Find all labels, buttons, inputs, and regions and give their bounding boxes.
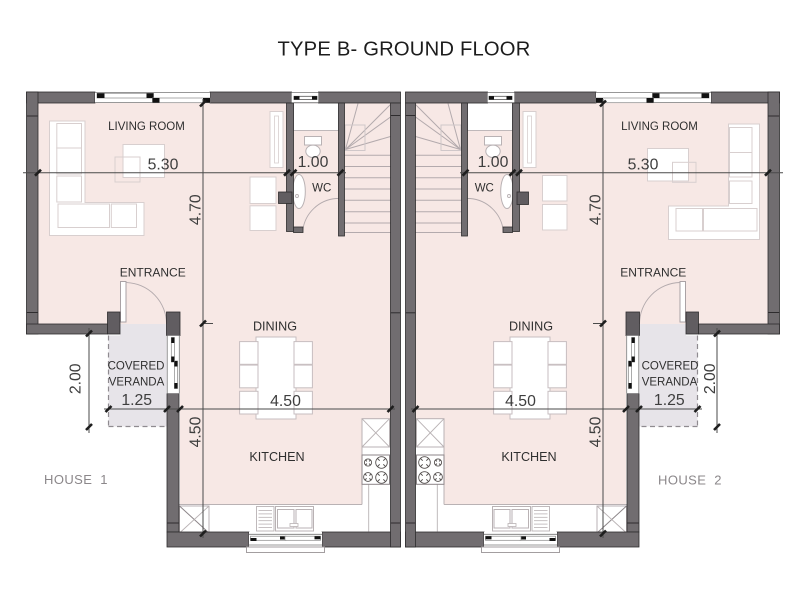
svg-text:2.00: 2.00 [702, 363, 719, 394]
svg-text:KITCHEN: KITCHEN [249, 450, 304, 464]
svg-text:5.30: 5.30 [628, 156, 659, 173]
svg-text:KITCHEN: KITCHEN [501, 450, 556, 464]
svg-text:1.00: 1.00 [478, 154, 509, 171]
svg-text:4.50: 4.50 [588, 416, 605, 447]
svg-text:HOUSE 1: HOUSE 1 [44, 472, 108, 487]
svg-text:DINING: DINING [253, 320, 297, 334]
svg-text:5.30: 5.30 [148, 156, 179, 173]
svg-text:LIVING ROOM: LIVING ROOM [108, 121, 185, 133]
svg-text:WC: WC [475, 183, 494, 195]
svg-text:2.00: 2.00 [68, 363, 85, 394]
svg-text:4.50: 4.50 [270, 393, 301, 410]
svg-text:TYPE B- GROUND FLOOR: TYPE B- GROUND FLOOR [277, 39, 530, 61]
svg-text:4.50: 4.50 [505, 393, 536, 410]
svg-text:VERANDA: VERANDA [642, 376, 698, 388]
svg-text:4.50: 4.50 [188, 416, 205, 447]
svg-text:ENTRANCE: ENTRANCE [120, 265, 186, 279]
svg-text:1.00: 1.00 [298, 154, 329, 171]
svg-text:WC: WC [312, 183, 331, 195]
svg-text:VERANDA: VERANDA [109, 376, 165, 388]
svg-text:1.25: 1.25 [121, 392, 152, 409]
svg-text:COVERED: COVERED [108, 361, 165, 373]
svg-text:DINING: DINING [509, 320, 553, 334]
svg-text:LIVING ROOM: LIVING ROOM [621, 121, 698, 133]
svg-text:1.25: 1.25 [654, 392, 685, 409]
svg-text:COVERED: COVERED [642, 361, 699, 373]
svg-text:ENTRANCE: ENTRANCE [620, 265, 686, 279]
svg-text:4.70: 4.70 [188, 194, 205, 225]
svg-text:HOUSE 2: HOUSE 2 [658, 472, 722, 487]
svg-text:4.70: 4.70 [588, 194, 605, 225]
